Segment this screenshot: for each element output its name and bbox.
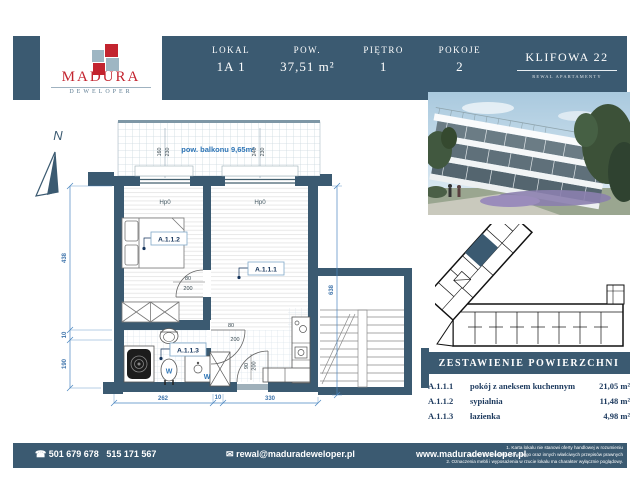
hp-left: Hp0: [159, 199, 171, 206]
legal-line-2: art. 66 § 1 Kodeksu Cywilnego oraz innyc…: [413, 452, 623, 459]
balcony-railing: [118, 120, 320, 123]
phone-icon: ☎: [35, 449, 46, 459]
legal-line-1: 1. Karta lokalu nie stanowi oferty handl…: [413, 445, 623, 452]
summary-pokoje: POKOJE 2: [422, 45, 498, 75]
balcony-area-label: pow. balkonu 9,65m²: [181, 145, 255, 154]
key-plan: [435, 224, 630, 350]
area-table-title: ZESTAWIENIE POWIERZCHNI: [439, 358, 620, 369]
logo-rule: [51, 87, 151, 88]
phone-number-2: 515 171 567: [106, 449, 156, 459]
email-block: ✉ rewal@maduradeweloper.pl: [226, 449, 355, 460]
svg-text:A.1.1.3: A.1.1.3: [177, 348, 199, 355]
wardrobe: [122, 302, 179, 322]
window-left-sill: [135, 166, 193, 176]
dim-438: 438: [62, 252, 68, 263]
dim-10-left: 10: [62, 331, 68, 338]
lavender-front: [480, 195, 540, 207]
svg-text:A.1.1.1: A.1.1.1: [255, 267, 277, 274]
table-row: A.1.1.2 sypialnia 11,48 m²: [428, 396, 630, 406]
summary-pietro: PIĘTRO 1: [346, 45, 422, 75]
dim-190: 190: [62, 358, 68, 369]
dim-10-bottom: 10: [215, 395, 222, 401]
window-left-height: 230: [165, 148, 171, 157]
window-right-sill: [222, 166, 298, 176]
legal-line-3: 2. Oznaczenia mebli i wyposażenia w rzuc…: [413, 459, 623, 466]
hp-right: Hp0: [254, 199, 266, 206]
area-table-header: ZESTAWIENIE POWIERZCHNI: [428, 352, 630, 374]
email-icon: ✉: [226, 449, 234, 459]
toilet: [160, 329, 178, 344]
entrance-door-height: 200: [252, 361, 258, 370]
project-name: KLIFOWA 22: [513, 50, 621, 65]
key-plan-stair-tower: [607, 285, 624, 304]
offer-card: MADURA DEWELOPER LOKAL 1A 1 POW. 37,51 m…: [0, 0, 640, 480]
entrance-door-width: 90: [244, 363, 250, 369]
entrance-threshold: [237, 384, 268, 390]
summary-lokal: LOKAL 1A 1: [193, 45, 269, 75]
unit-summary: LOKAL 1A 1 POW. 37,51 m² PIĘTRO 1 POKOJE…: [193, 45, 498, 75]
floor-plan: pow. balkonu 9,65m² 160 230 240 230: [55, 108, 435, 432]
bathroom-door-height: 200: [230, 337, 239, 343]
summary-pow: POW. 37,51 m²: [269, 45, 345, 75]
dim-330: 330: [265, 396, 276, 402]
bathroom-door-width: 80: [228, 323, 234, 329]
dim-262: 262: [158, 396, 169, 402]
project-subtitle: REWAL APARTAMENTY: [513, 74, 621, 79]
email-address: rewal@maduradeweloper.pl: [236, 449, 355, 459]
key-plan-south-wing: [437, 304, 623, 346]
table-row: A.1.1.3 łazienka 4,98 m²: [428, 411, 630, 421]
hall-cabinet-label: W: [204, 374, 211, 381]
project-rule: [517, 70, 617, 71]
bedroom-door-width: 80: [185, 276, 191, 282]
washing-machine-label: W: [166, 369, 173, 376]
area-table: A.1.1.1 pokój z aneksem kuchennym 21,05 …: [428, 381, 630, 426]
footer-band: ☎ 501 679 678 515 171 567 ✉ rewal@madura…: [13, 443, 627, 468]
bedroom-door-height: 200: [183, 286, 192, 292]
building-render: [428, 92, 630, 215]
logo-subtitle: DEWELOPER: [40, 89, 162, 95]
staircase: [320, 310, 404, 387]
project-name-block: KLIFOWA 22 REWAL APARTAMENTY: [513, 50, 621, 79]
window-right-width: 240: [252, 148, 258, 157]
shower: [124, 346, 154, 382]
logo-square-gray-top: [92, 50, 104, 62]
developer-logo: MADURA DEWELOPER: [40, 36, 162, 100]
dim-638: 638: [329, 284, 335, 295]
phone-block: ☎ 501 679 678 515 171 567: [35, 449, 156, 460]
window-left-width: 160: [157, 148, 163, 157]
svg-text:A.1.1.2: A.1.1.2: [158, 237, 180, 244]
logo-name: MADURA: [40, 69, 162, 86]
table-row: A.1.1.1 pokój z aneksem kuchennym 21,05 …: [428, 381, 630, 391]
window-right-height: 230: [260, 148, 266, 157]
legal-disclaimer: 1. Karta lokalu nie stanowi oferty handl…: [413, 445, 623, 466]
logo-square-red-top: [105, 44, 118, 57]
phone-number-1: 501 679 678: [49, 449, 99, 459]
